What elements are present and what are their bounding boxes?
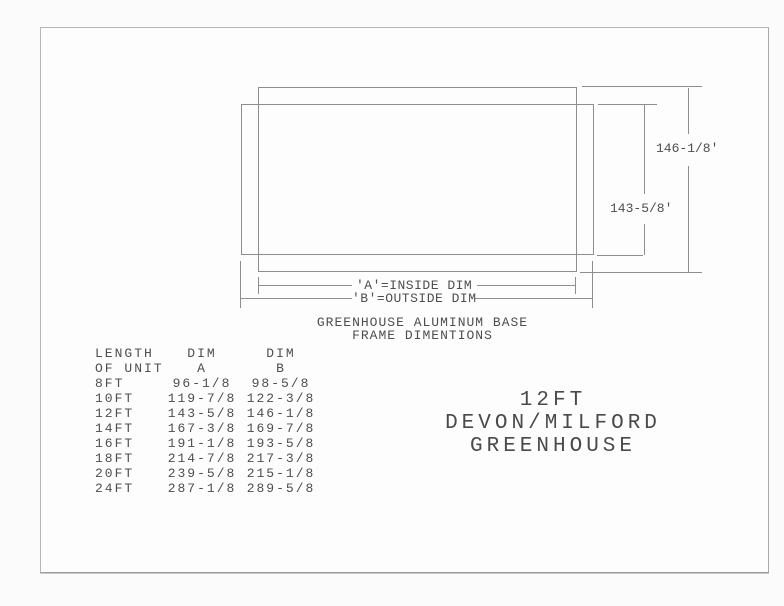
table-cell-length: 8FT: [95, 376, 165, 391]
dim-a-tick-left: [258, 277, 259, 294]
dim-value-inner: 143-5/8': [610, 201, 672, 216]
table-cell-dim-a: 191-1/8: [165, 436, 239, 451]
dim-a-line-right: [477, 285, 575, 286]
table-header-dim-b: DIM: [239, 346, 323, 361]
dim-line-inner-lower: [644, 224, 645, 255]
drawing-caption: GREENHOUSE ALUMINUM BASE FRAME DIMENTION…: [305, 316, 540, 342]
table-cell-dim-a: 167-3/8: [165, 421, 239, 436]
table-cell-dim-b: 169-7/8: [239, 421, 323, 436]
table-cell-length: 18FT: [95, 451, 165, 466]
table-header-length: LENGTH: [95, 346, 165, 361]
table-cell-dim-b: 289-5/8: [239, 481, 323, 496]
caption-line-2: FRAME DIMENTIONS: [305, 329, 540, 342]
table-cell-length: 16FT: [95, 436, 165, 451]
dim-b-tick-right: [592, 261, 593, 308]
table-cell-dim-b: 146-1/8: [239, 406, 323, 421]
table-cell-length: 24FT: [95, 481, 165, 496]
table-cell-dim-a: 143-5/8: [165, 406, 239, 421]
table-cell-length: 12FT: [95, 406, 165, 421]
title-line-model: DEVON/MILFORD: [420, 412, 686, 435]
ext-line-top-inner: [598, 104, 657, 105]
dim-b-label: 'B'=OUTSIDE DIM: [352, 291, 477, 306]
dim-b-line-right: [474, 298, 592, 299]
table-cell-dim-b: 98-5/8: [239, 376, 323, 391]
title-line-size: 12FT: [420, 389, 686, 412]
scanned-drawing-page: { "colors": { "line": "#8d8d8d", "text":…: [0, 0, 784, 606]
table-header-dim-a: DIM: [165, 346, 239, 361]
dim-line-inner-upper: [644, 105, 645, 194]
table-cell-dim-a: 239-5/8: [165, 466, 239, 481]
dim-line-outer-lower: [688, 166, 689, 272]
table-cell-length: 14FT: [95, 421, 165, 436]
table-cell-dim-a: 287-1/8: [165, 481, 239, 496]
dimension-table: LENGTH DIM DIM OF UNIT A B 8FT 96-1/8 98…: [95, 346, 323, 496]
dim-value-outer: 146-1/8': [656, 141, 718, 156]
dim-b-tick-left: [240, 261, 241, 308]
frame-rect-lower: [241, 104, 594, 255]
title-line-type: GREENHOUSE: [420, 435, 686, 458]
table-cell-dim-b: 193-5/8: [239, 436, 323, 451]
dim-b-line-left: [240, 298, 352, 299]
dim-a-line-left: [258, 285, 352, 286]
table-cell-length: 20FT: [95, 466, 165, 481]
dim-a-tick-right: [575, 277, 576, 294]
table-cell-dim-b: 217-3/8: [239, 451, 323, 466]
ext-line-top-outer: [582, 86, 702, 87]
table-header-b: B: [239, 361, 323, 376]
table-cell-dim-a: 96-1/8: [165, 376, 239, 391]
table-header-of-unit: OF UNIT: [95, 361, 165, 376]
table-cell-dim-b: 215-1/8: [239, 466, 323, 481]
table-cell-dim-a: 214-7/8: [165, 451, 239, 466]
dim-line-outer-upper: [688, 88, 689, 134]
title-block: 12FT DEVON/MILFORD GREENHOUSE: [420, 389, 686, 458]
table-header-a: A: [165, 361, 239, 376]
table-cell-length: 10FT: [95, 391, 165, 406]
table-cell-dim-b: 122-3/8: [239, 391, 323, 406]
ext-line-bottom-inner: [597, 255, 643, 256]
ext-line-bottom-outer: [580, 272, 702, 273]
table-cell-dim-a: 119-7/8: [165, 391, 239, 406]
